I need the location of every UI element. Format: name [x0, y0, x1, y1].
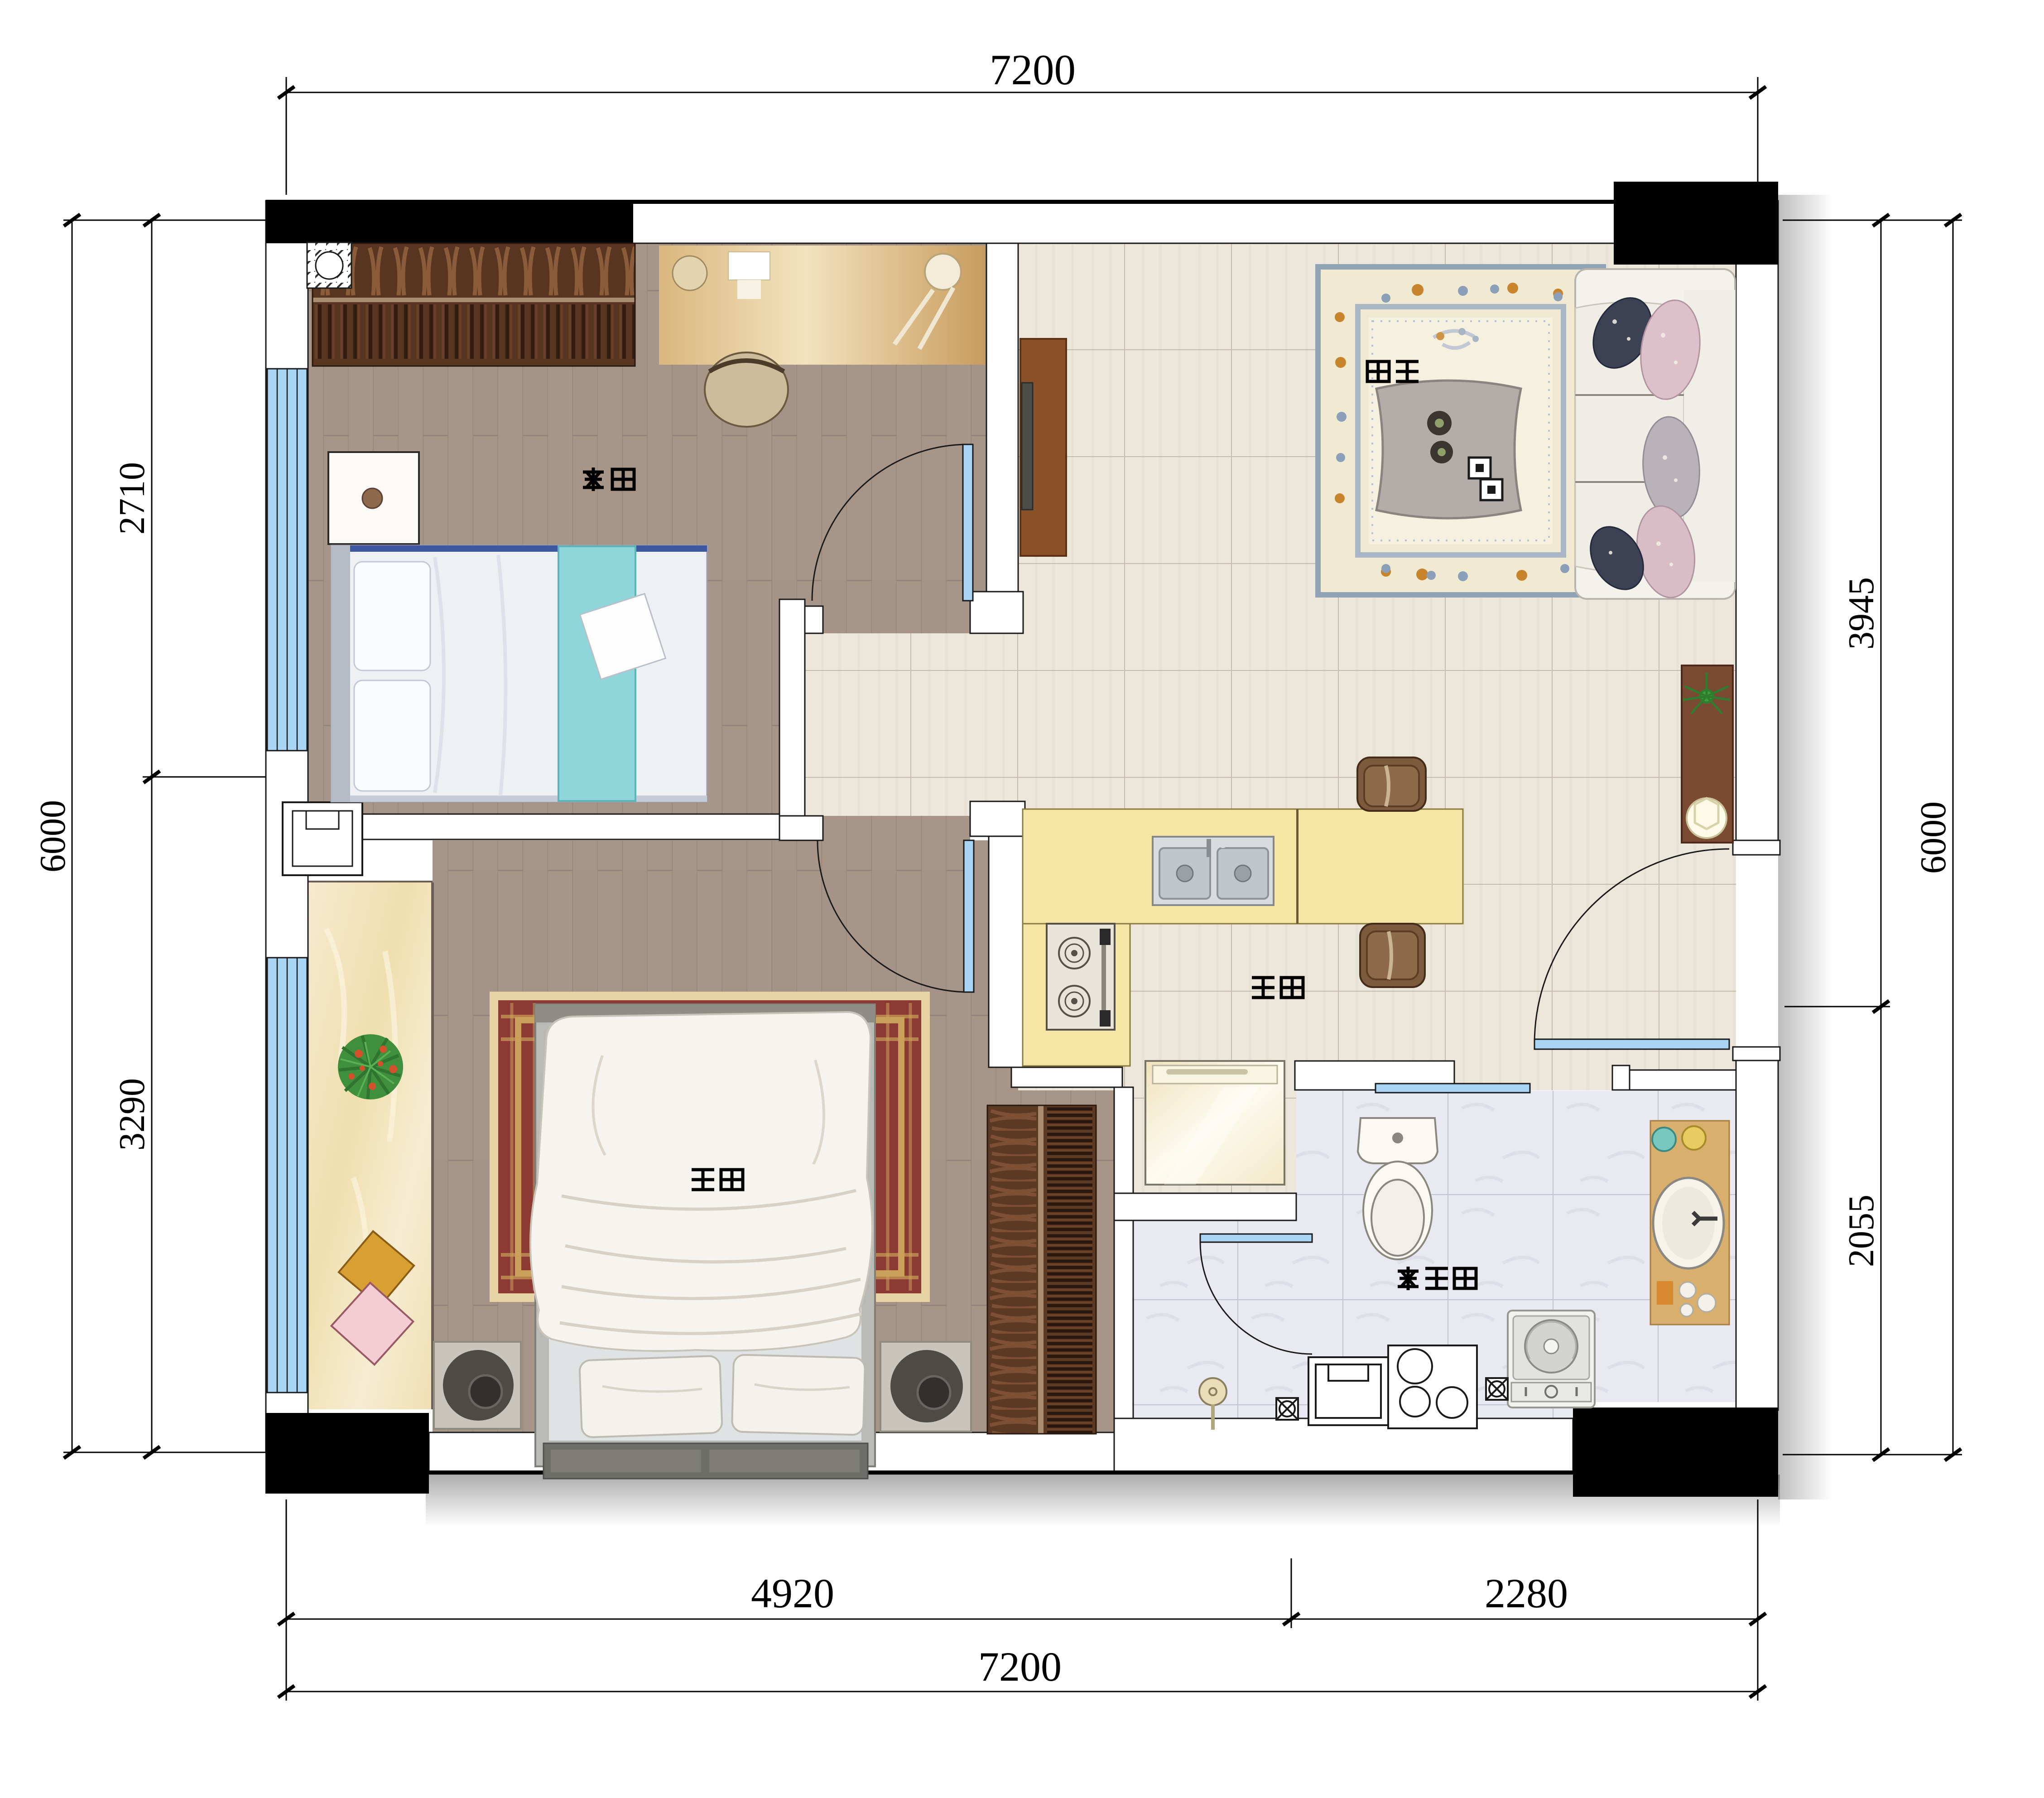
svg-text:7200: 7200 — [978, 1644, 1062, 1690]
svg-text:6000: 6000 — [33, 800, 73, 872]
svg-text:2280: 2280 — [1485, 1570, 1568, 1616]
svg-text:4920: 4920 — [751, 1570, 834, 1616]
svg-text:2055: 2055 — [1842, 1195, 1881, 1267]
svg-text:7200: 7200 — [990, 46, 1076, 94]
svg-text:6000: 6000 — [1914, 801, 1953, 874]
svg-text:3290: 3290 — [112, 1078, 152, 1151]
svg-text:3945: 3945 — [1842, 577, 1881, 650]
svg-text:2710: 2710 — [112, 462, 152, 535]
